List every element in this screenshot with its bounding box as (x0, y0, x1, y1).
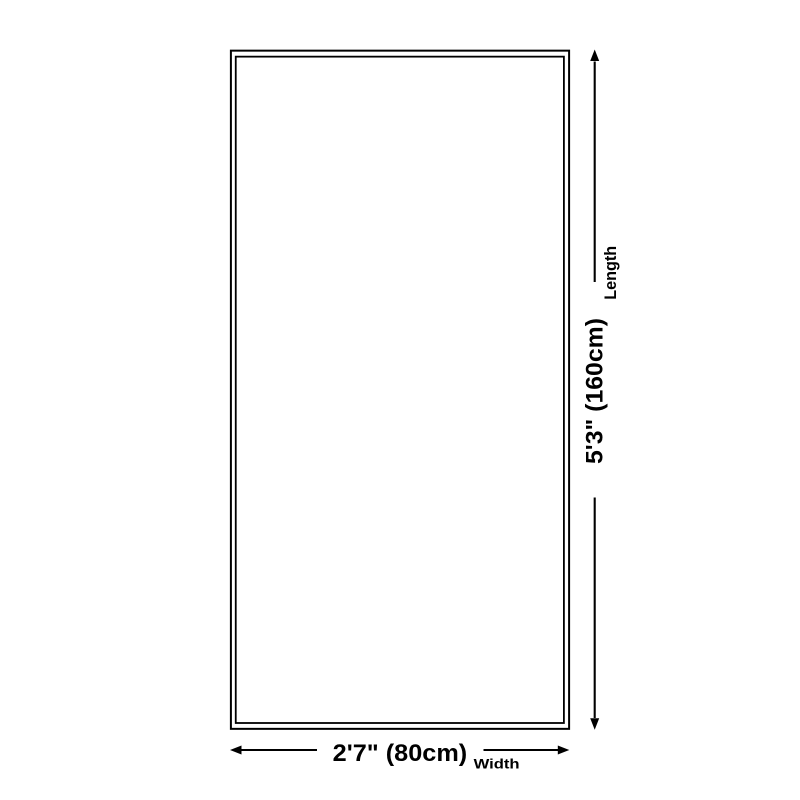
svg-text:2'7" (80cm): 2'7" (80cm) (333, 741, 468, 767)
svg-text:Width: Width (474, 756, 520, 772)
svg-text:5'3" (160cm): 5'3" (160cm) (581, 318, 608, 464)
svg-text:Length: Length (601, 246, 620, 300)
